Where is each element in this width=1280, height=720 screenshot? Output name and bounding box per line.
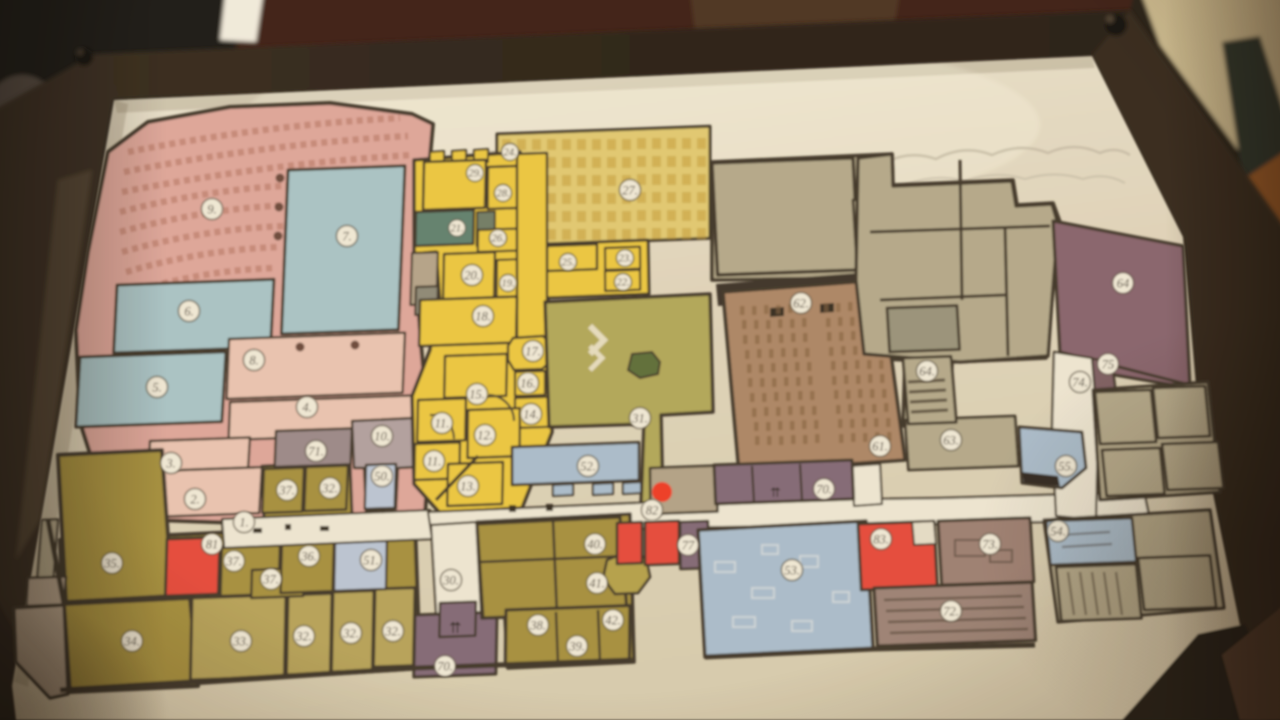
svg-text:28.: 28. (496, 189, 509, 200)
svg-text:19.: 19. (501, 279, 514, 290)
svg-text:72.: 72. (943, 604, 959, 618)
svg-text:18.: 18. (475, 309, 491, 323)
svg-text:75: 75 (1102, 357, 1115, 371)
svg-text:40.: 40. (587, 537, 603, 551)
svg-text:73.: 73. (982, 537, 998, 551)
svg-text:6.: 6. (184, 304, 193, 318)
svg-text:38.: 38. (529, 618, 546, 632)
svg-text:10.: 10. (374, 429, 390, 443)
svg-text:11.: 11. (435, 416, 450, 430)
svg-text:70.: 70. (816, 482, 832, 496)
svg-text:39.: 39. (568, 639, 585, 653)
svg-text:11.: 11. (427, 454, 442, 468)
svg-text:9.: 9. (207, 202, 216, 216)
svg-text:16.: 16. (520, 376, 536, 390)
svg-text:23.: 23. (618, 254, 631, 265)
svg-text:30.: 30. (442, 573, 459, 587)
svg-text:70.: 70. (437, 659, 453, 673)
svg-text:41.: 41. (589, 576, 605, 590)
svg-text:3.: 3. (165, 456, 175, 470)
svg-text:1.: 1. (239, 515, 248, 529)
svg-text:37.: 37. (262, 572, 279, 586)
svg-text:12.: 12. (477, 428, 493, 442)
svg-text:25.: 25. (561, 258, 574, 269)
svg-text:53.: 53. (784, 563, 800, 577)
svg-text:27.: 27. (622, 183, 638, 197)
svg-text:82: 82 (646, 503, 659, 517)
svg-text:50.: 50. (374, 469, 390, 483)
svg-text:64.: 64. (919, 364, 935, 378)
svg-text:36.: 36. (300, 549, 317, 563)
svg-text:37.: 37. (225, 554, 242, 568)
svg-text:55.: 55. (1058, 459, 1074, 473)
svg-text:52.: 52. (580, 459, 596, 473)
svg-text:21.: 21. (450, 224, 463, 235)
svg-text:20.: 20. (464, 268, 480, 282)
svg-text:22.: 22. (616, 278, 629, 289)
svg-text:33.: 33. (232, 634, 249, 648)
svg-text:81: 81 (206, 537, 219, 551)
svg-text:31.: 31. (631, 411, 648, 425)
svg-text:34.: 34. (123, 634, 140, 648)
svg-text:26.: 26. (491, 234, 504, 245)
svg-text:51.: 51. (363, 553, 379, 567)
svg-text:13.: 13. (460, 479, 476, 493)
svg-text:8.: 8. (249, 353, 258, 367)
svg-text:62.: 62. (793, 296, 809, 310)
svg-text:32.: 32. (321, 481, 338, 495)
svg-text:77: 77 (682, 538, 695, 552)
svg-text:4.: 4. (302, 400, 311, 414)
svg-text:⇈: ⇈ (770, 485, 781, 500)
svg-text:5.: 5. (152, 380, 161, 394)
svg-text:42.: 42. (605, 613, 621, 627)
svg-text:14.: 14. (523, 407, 539, 421)
svg-text:37.: 37. (278, 483, 295, 497)
svg-text:35.: 35. (103, 556, 120, 570)
svg-text:54.: 54. (1050, 524, 1066, 538)
svg-text:64: 64 (1117, 276, 1130, 290)
svg-text:⇈: ⇈ (449, 620, 462, 637)
svg-text:7.: 7. (342, 229, 351, 243)
svg-text:17.: 17. (525, 344, 541, 358)
svg-text:15.: 15. (469, 387, 485, 401)
svg-text:61.: 61. (872, 439, 888, 453)
svg-text:32.: 32. (295, 629, 312, 643)
svg-text:32.: 32. (342, 626, 359, 640)
svg-text:29.: 29. (468, 169, 481, 180)
svg-text:24.: 24. (503, 148, 516, 159)
svg-text:63.: 63. (943, 433, 959, 447)
svg-text:2.: 2. (190, 492, 199, 506)
svg-text:83.: 83. (873, 532, 889, 546)
svg-text:71.: 71. (308, 444, 324, 458)
svg-text:32.: 32. (384, 624, 401, 638)
svg-text:74.: 74. (1072, 375, 1088, 389)
